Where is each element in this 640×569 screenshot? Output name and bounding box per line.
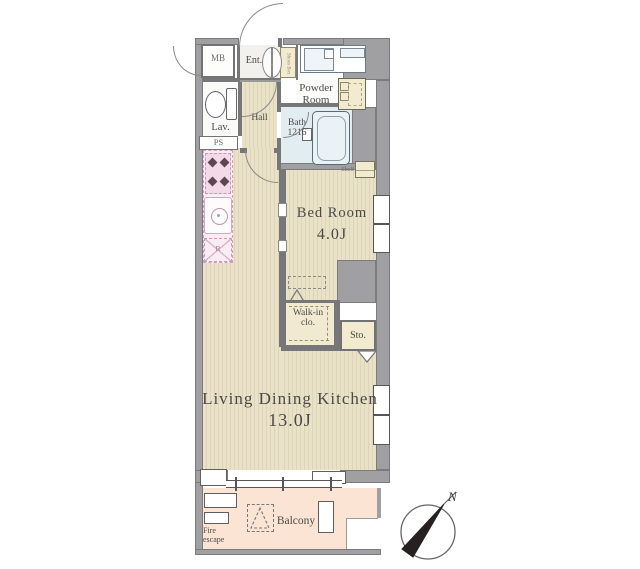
balcony-corner-cutout — [346, 518, 378, 549]
walkin-label: Walk-in clo. — [287, 308, 329, 329]
stove-burner — [220, 177, 230, 187]
closet-door-triangle-icon — [287, 289, 307, 304]
vanity-icon — [338, 78, 366, 110]
ac-unit-box — [318, 501, 334, 533]
hanger-rail-top — [289, 306, 329, 307]
shelf-divider — [356, 170, 374, 171]
lav-label: Lav. — [203, 122, 238, 134]
fire-escape-panel — [204, 512, 229, 524]
shoes-box: Shoes Box — [280, 47, 296, 78]
toilet-icon — [205, 88, 237, 122]
wall-ldk-bottom-right — [340, 470, 390, 483]
wall-hall-powder — [277, 82, 281, 112]
toilet-tank — [226, 88, 237, 120]
floorplan-canvas: MB PS Shoes Box Powder Room Lav. Bath 12… — [0, 0, 640, 569]
shelf-box — [355, 161, 375, 178]
wall-balcony-right — [377, 488, 381, 518]
fridge-label: R — [204, 245, 232, 253]
compass: N — [394, 484, 470, 568]
fire-escape-label: Fire escape — [203, 526, 239, 544]
window-mullion — [374, 223, 389, 225]
stove-burner — [220, 158, 230, 168]
storage-door-triangle-icon — [357, 350, 377, 363]
north-label: N — [447, 489, 458, 504]
shelf-label: Shelf — [333, 167, 354, 174]
entrance-door-arc — [239, 3, 283, 47]
bathtub-icon — [312, 111, 350, 165]
rail-tick — [330, 477, 332, 491]
vanity-mirror-dash — [348, 83, 362, 106]
stove-icon — [205, 153, 231, 194]
shaft-x-box — [200, 469, 227, 486]
laundry-counter — [300, 45, 366, 73]
bedroom-size-label: 4.0J — [288, 226, 376, 244]
shoes-box-label: Shoes Box — [286, 50, 291, 77]
stove-burner — [208, 158, 218, 168]
bathtub-inner — [317, 116, 346, 161]
wall-ent-left — [237, 45, 240, 80]
bedroom-window — [373, 195, 390, 253]
bedroom-door-panel-b — [278, 240, 287, 252]
mb-label: MB — [203, 54, 233, 64]
wall-wic-bottom — [281, 345, 340, 351]
stove-burner — [208, 177, 218, 187]
wall-balcony-bottom — [195, 549, 381, 555]
wall-bedroom-left — [279, 169, 286, 347]
hanger-rail-bottom — [289, 340, 329, 341]
wall-block-bath-right — [352, 107, 376, 169]
balcony-sliding-door — [226, 480, 342, 488]
powder-room-label: Powder Room — [288, 82, 344, 106]
fire-hose-box — [204, 493, 237, 508]
rail-tick — [282, 477, 284, 491]
bedroom-label: Bed Room — [288, 206, 376, 222]
kitchen-sink-icon — [204, 197, 232, 234]
toilet-bowl — [205, 91, 226, 118]
washer-tap-icon — [324, 49, 334, 59]
entrance-label: Ent. — [241, 55, 267, 66]
ldk-label: Living Dining Kitchen — [200, 390, 380, 409]
mb-door-arc — [173, 46, 201, 76]
closet-dashed-area — [288, 276, 326, 289]
sink-drain — [217, 214, 220, 217]
balcony-label: Balcony — [268, 515, 324, 528]
ldk-size-label: 13.0J — [200, 411, 380, 431]
storage-label: Sto. — [340, 330, 376, 341]
ps-label: PS — [199, 138, 238, 147]
counter-shelf-icon — [340, 48, 365, 58]
north-arrow-icon — [402, 504, 444, 557]
wall-top-right — [283, 38, 345, 45]
wall-block-midright — [337, 260, 376, 303]
wall-shoes-powder — [296, 45, 298, 80]
bedroom-door-panel-a — [278, 203, 287, 217]
rail-tick — [235, 477, 237, 491]
